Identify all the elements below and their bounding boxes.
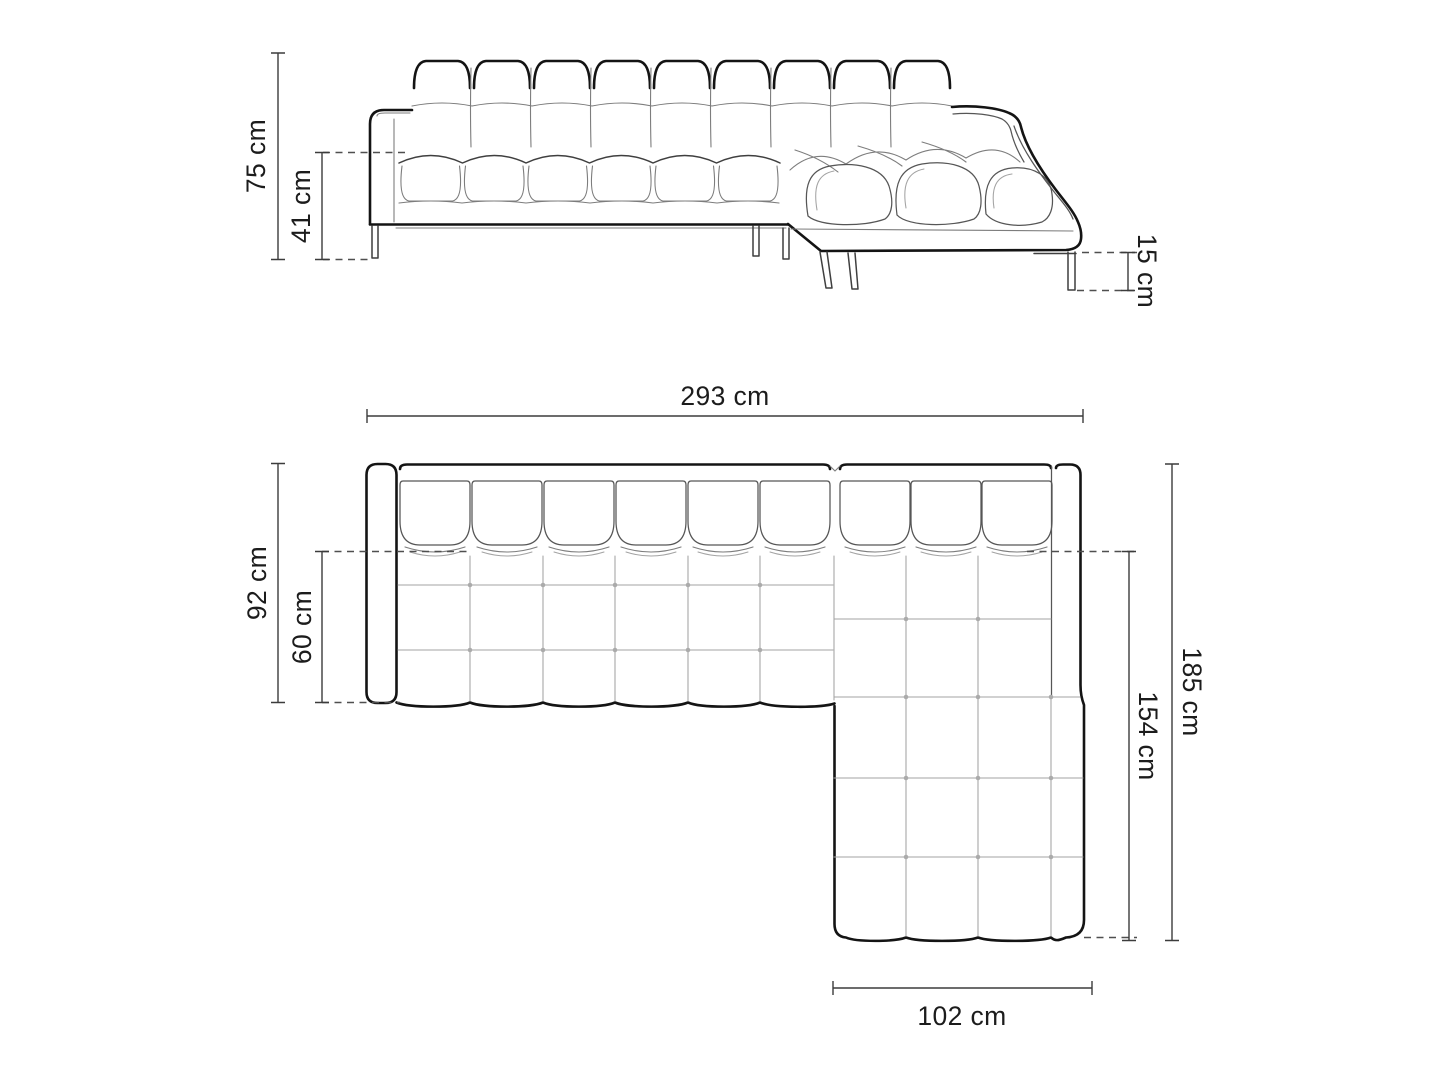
dimension-line (1165, 464, 1179, 941)
diagram-canvas: 75 cm 41 cm 15 cm (0, 0, 1449, 1086)
front-reference-dashes (323, 153, 1137, 291)
plan-depth-seat-dimension: 60 cm (287, 552, 329, 703)
sofa-seat-cushion-tops (399, 156, 780, 164)
plan-left-armrest (367, 464, 397, 703)
sofa-left-armrest-outline (370, 110, 412, 224)
sofa-chaise-arm-contours (953, 113, 1073, 219)
grid-vertical-lines (470, 556, 1051, 936)
dimension-label-depth-total: 92 cm (242, 546, 272, 620)
front-height-legs-dimension: 15 cm (1121, 234, 1162, 308)
plan-right-arm-and-chaise-outline (835, 465, 1085, 941)
plan-depth-total-dimension: 92 cm (242, 464, 285, 703)
sofa-chaise-plinth-line (791, 229, 1073, 231)
sofa-dimension-diagram: 75 cm 41 cm 15 cm (0, 0, 1449, 1086)
dimension-label-length-total: 185 cm (1177, 647, 1207, 736)
dimension-line (833, 981, 1092, 995)
dimension-line (271, 53, 285, 260)
plan-backrest-cushions (400, 481, 1052, 556)
dimension-line (271, 464, 285, 703)
plan-top-edge (400, 465, 1051, 470)
sofa-chaise-cushion-inner-contours (816, 169, 1012, 210)
plan-width-total-dimension: 293 cm (367, 381, 1083, 423)
sofa-seat-cushion-bodies (401, 166, 778, 201)
dimension-line (315, 552, 329, 703)
sofa-legs (372, 226, 1075, 290)
top-plan-view: 293 cm 92 cm 60 cm 185 cm 154 cm 102 cm (242, 381, 1207, 1031)
plan-reference-dashes (322, 552, 1137, 938)
dimension-label-height-seat: 41 cm (286, 169, 316, 243)
sofa-backrest-cushions-outline (414, 61, 950, 88)
dimension-label-width-total: 293 cm (680, 381, 769, 411)
sofa-left-armrest-contour (377, 113, 410, 222)
dimension-label-height-total: 75 cm (241, 119, 271, 193)
plan-tufting-grid (398, 556, 1083, 936)
plan-module-notch (830, 466, 840, 471)
front-elevation-view: 75 cm 41 cm 15 cm (241, 53, 1162, 308)
plan-length-chaise-seat-dimension: 154 cm (1122, 552, 1163, 941)
dimension-line (315, 153, 329, 260)
dimension-label-height-legs: 15 cm (1132, 234, 1162, 308)
plan-length-total-dimension: 185 cm (1165, 464, 1207, 941)
front-height-total-dimension: 75 cm (241, 53, 285, 260)
sofa-plinth-top-line (399, 201, 779, 203)
dimension-line (367, 409, 1083, 423)
dimension-label-width-chaise: 102 cm (917, 1001, 1006, 1031)
dimension-label-length-chaise-seat: 154 cm (1133, 691, 1163, 780)
grid-horizontal-lines (398, 585, 1083, 857)
dimension-label-depth-seat: 60 cm (287, 590, 317, 664)
front-height-seat-dimension: 41 cm (286, 153, 329, 260)
sofa-backrest-tuft-line (412, 103, 952, 106)
sofa-chaise-seat-cushions (806, 163, 1052, 225)
plan-main-bottom-edge (397, 703, 835, 707)
plan-width-chaise-dimension: 102 cm (833, 981, 1092, 1031)
